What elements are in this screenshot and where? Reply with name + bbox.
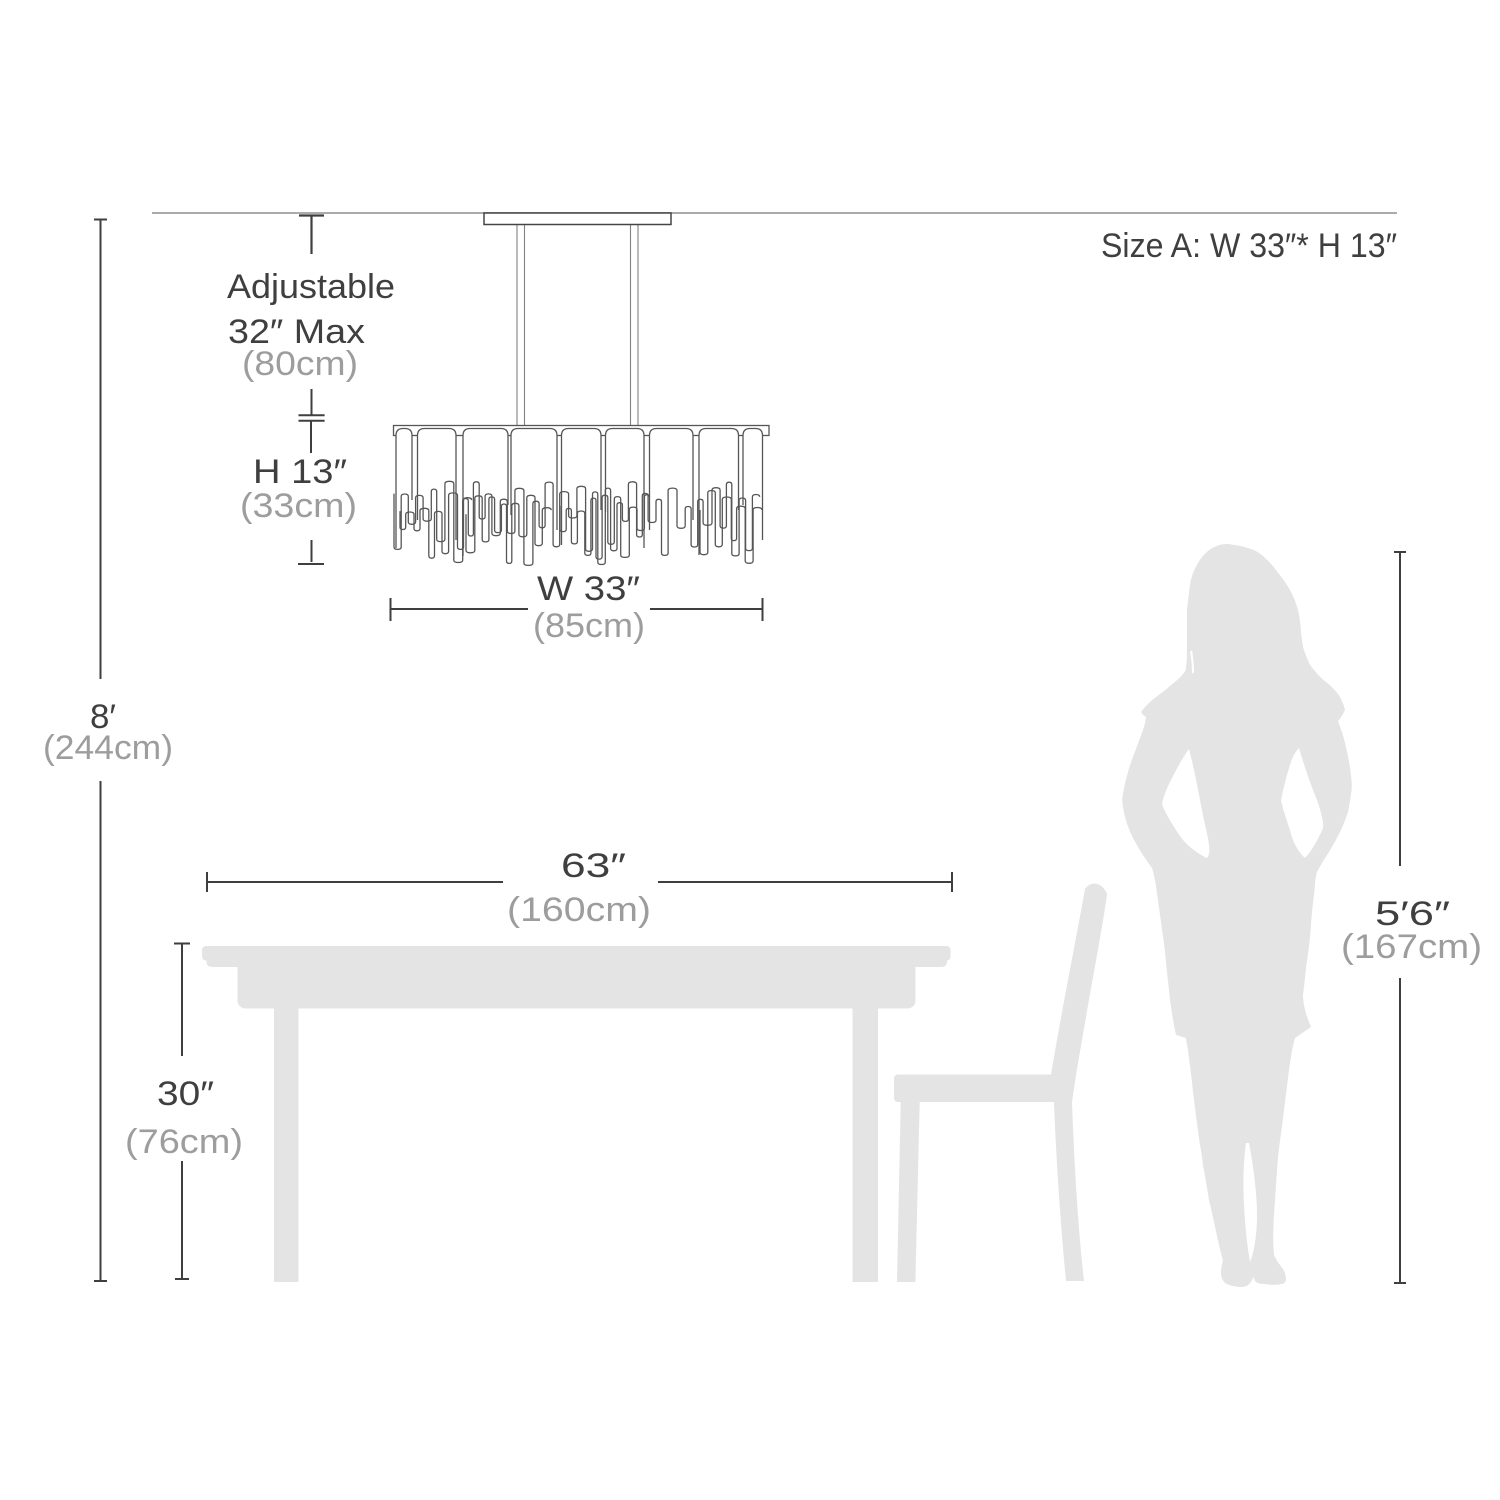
svg-text:(167cm): (167cm) bbox=[1341, 928, 1482, 966]
svg-text:(33cm): (33cm) bbox=[240, 487, 357, 525]
svg-text:H 13″: H 13″ bbox=[253, 453, 347, 491]
svg-text:(244cm): (244cm) bbox=[43, 729, 173, 767]
svg-text:63″: 63″ bbox=[561, 847, 626, 885]
svg-text:30″: 30″ bbox=[157, 1075, 214, 1113]
svg-text:Adjustable: Adjustable bbox=[227, 268, 395, 306]
svg-text:(76cm): (76cm) bbox=[125, 1123, 243, 1161]
svg-text:(85cm): (85cm) bbox=[533, 607, 645, 645]
svg-text:(80cm): (80cm) bbox=[242, 345, 358, 383]
svg-text:Size A: W 33″* H 13″: Size A: W 33″* H 13″ bbox=[1101, 227, 1397, 265]
svg-text:(160cm): (160cm) bbox=[507, 891, 651, 929]
svg-text:W 33″: W 33″ bbox=[537, 570, 640, 608]
